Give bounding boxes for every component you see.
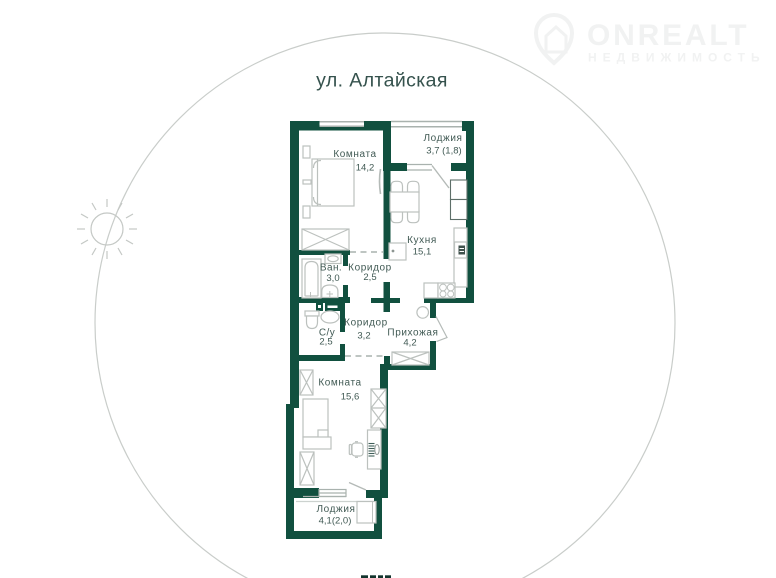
svg-text:Кухня: Кухня <box>407 235 437 246</box>
svg-text:15,6: 15,6 <box>341 392 360 403</box>
svg-text:Лоджия: Лоджия <box>316 504 355 515</box>
svg-text:3,2: 3,2 <box>357 331 370 342</box>
svg-text:НЕДВИЖИМОСТЬ: НЕДВИЖИМОСТЬ <box>588 51 766 65</box>
svg-text:ONREALT: ONREALT <box>587 19 749 52</box>
svg-text:3,7 (1,8): 3,7 (1,8) <box>426 146 461 157</box>
svg-text:4,2: 4,2 <box>403 338 416 349</box>
svg-text:Комната: Комната <box>318 378 361 389</box>
svg-text:2,5: 2,5 <box>319 337 332 348</box>
svg-text:Лоджия: Лоджия <box>423 133 462 144</box>
svg-text:Комната: Комната <box>333 149 376 160</box>
svg-text:15,1: 15,1 <box>413 247 432 258</box>
svg-text:4,1(2,0): 4,1(2,0) <box>319 516 352 527</box>
svg-text:Ван.: Ван. <box>320 263 342 274</box>
svg-text:Коридор: Коридор <box>344 318 388 329</box>
svg-text:ул. Алтайская: ул. Алтайская <box>316 70 448 92</box>
svg-text:3,0: 3,0 <box>326 273 339 284</box>
svg-text:14,2: 14,2 <box>356 163 375 174</box>
svg-text:2,5: 2,5 <box>363 272 376 283</box>
